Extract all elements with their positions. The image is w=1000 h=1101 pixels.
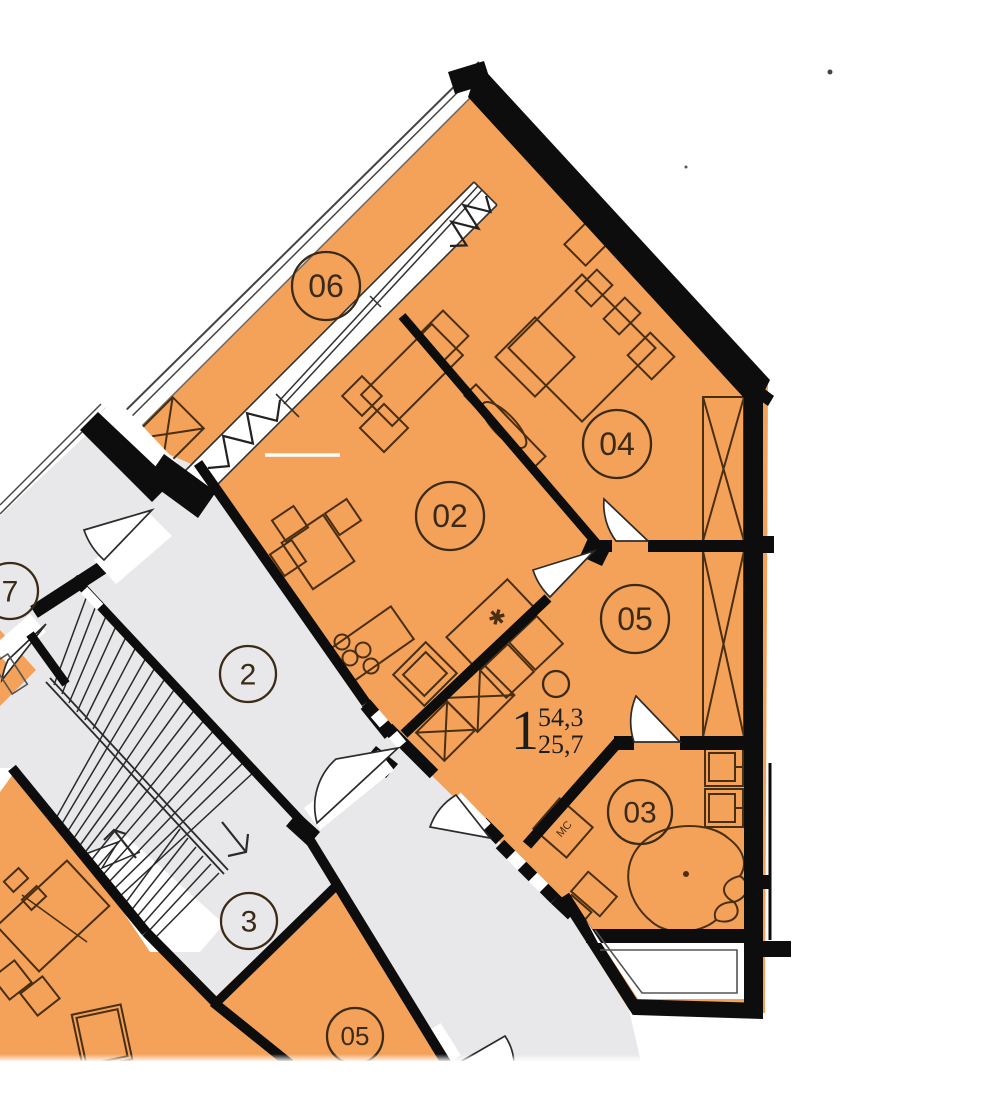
- svg-text:03: 03: [623, 797, 656, 830]
- svg-text:04: 04: [599, 426, 635, 462]
- svg-text:2: 2: [240, 659, 257, 692]
- svg-text:05: 05: [341, 1021, 370, 1051]
- svg-text:06: 06: [308, 268, 344, 304]
- svg-text:25,7: 25,7: [538, 730, 584, 759]
- svg-text:02: 02: [432, 498, 468, 534]
- svg-text:54,3: 54,3: [538, 703, 584, 732]
- svg-text:7: 7: [2, 576, 19, 609]
- svg-text:3: 3: [241, 906, 258, 939]
- svg-text:1: 1: [511, 700, 539, 762]
- svg-text:05: 05: [617, 601, 653, 637]
